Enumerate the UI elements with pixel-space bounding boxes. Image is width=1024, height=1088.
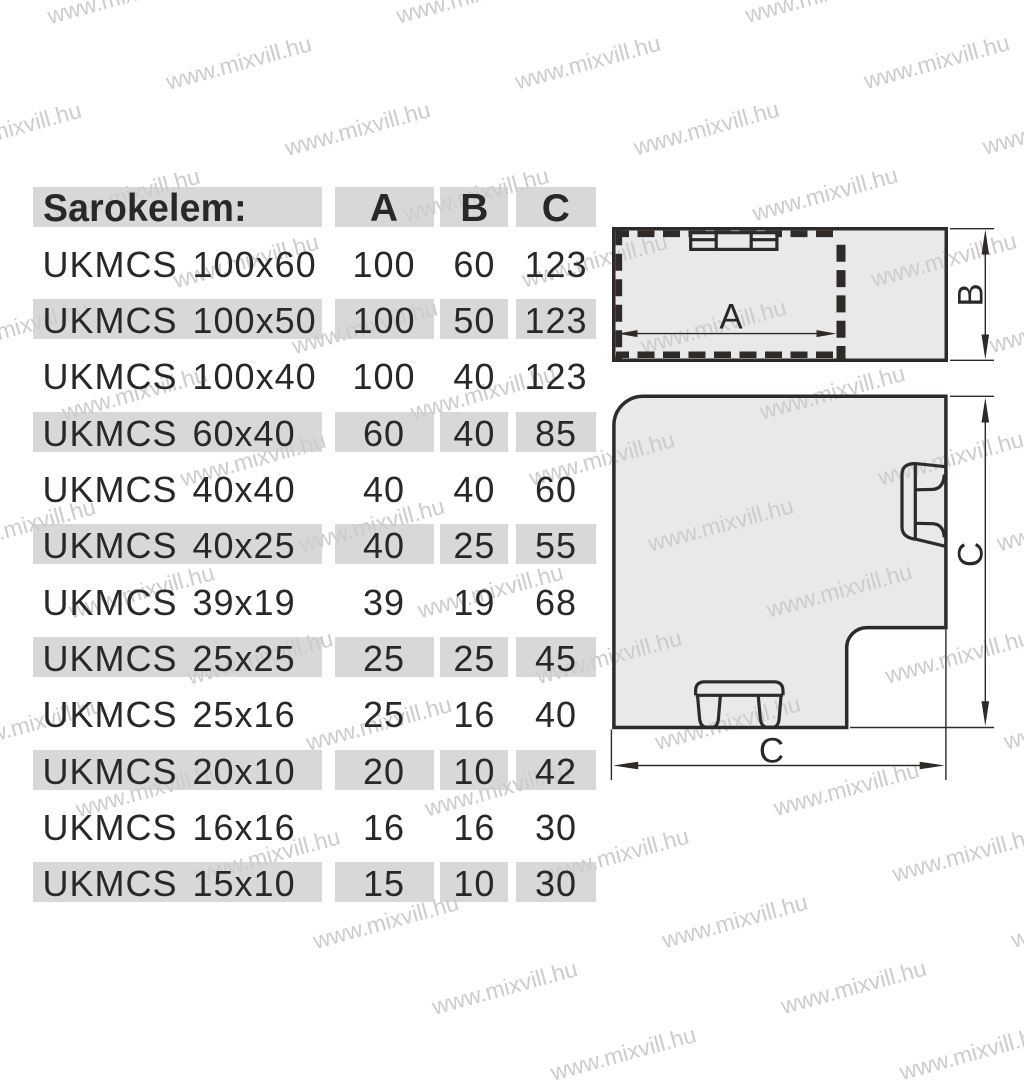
svg-text:www.mixvill.hu: www.mixvill.hu (888, 822, 1024, 887)
svg-text:www.mixvill.hu: www.mixvill.hu (400, 162, 552, 227)
svg-text:www.mixvill.hu: www.mixvill.hu (651, 690, 803, 755)
svg-text:www.mixvill.hu: www.mixvill.hu (644, 492, 796, 557)
svg-text:www.mixvill.hu: www.mixvill.hu (896, 1020, 1024, 1085)
svg-text:www.mixvill.hu: www.mixvill.hu (0, 295, 91, 360)
svg-text:www.mixvill.hu: www.mixvill.hu (763, 558, 915, 623)
svg-text:www.mixvill.hu: www.mixvill.hu (169, 229, 321, 294)
svg-text:www.mixvill.hu: www.mixvill.hu (407, 360, 559, 425)
svg-text:www.mixvill.hu: www.mixvill.hu (51, 163, 203, 228)
svg-text:www.mixvill.hu: www.mixvill.hu (162, 30, 314, 95)
svg-text:www.mixvill.hu: www.mixvill.hu (993, 492, 1024, 557)
svg-text:www.mixvill.hu: www.mixvill.hu (748, 162, 900, 227)
svg-text:www.mixvill.hu: www.mixvill.hu (428, 955, 580, 1020)
svg-text:www.mixvill.hu: www.mixvill.hu (518, 228, 670, 293)
svg-text:www.mixvill.hu: www.mixvill.hu (0, 97, 84, 162)
svg-text:www.mixvill.hu: www.mixvill.hu (511, 30, 663, 95)
svg-text:www.mixvill.hu: www.mixvill.hu (295, 493, 447, 558)
svg-text:www.mixvill.hu: www.mixvill.hu (874, 426, 1024, 491)
svg-text:www.mixvill.hu: www.mixvill.hu (0, 493, 98, 558)
svg-text:www.mixvill.hu: www.mixvill.hu (881, 624, 1024, 689)
svg-text:www.mixvill.hu: www.mixvill.hu (309, 889, 461, 954)
svg-text:www.mixvill.hu: www.mixvill.hu (176, 427, 328, 492)
svg-text:www.mixvill.hu: www.mixvill.hu (525, 426, 677, 491)
svg-text:www.mixvill.hu: www.mixvill.hu (547, 1021, 699, 1086)
svg-text:www.mixvill.hu: www.mixvill.hu (756, 360, 908, 425)
svg-text:www.mixvill.hu: www.mixvill.hu (979, 95, 1024, 160)
svg-text:www.mixvill.hu: www.mixvill.hu (630, 96, 782, 161)
svg-text:www.mixvill.hu: www.mixvill.hu (392, 0, 544, 29)
svg-text:www.mixvill.hu: www.mixvill.hu (770, 756, 922, 821)
svg-text:www.mixvill.hu: www.mixvill.hu (532, 624, 684, 689)
svg-text:www.mixvill.hu: www.mixvill.hu (0, 691, 105, 756)
svg-text:www.mixvill.hu: www.mixvill.hu (65, 559, 217, 624)
svg-text:www.mixvill.hu: www.mixvill.hu (741, 0, 893, 28)
svg-text:www.mixvill.hu: www.mixvill.hu (986, 293, 1024, 358)
svg-text:www.mixvill.hu: www.mixvill.hu (1000, 690, 1024, 755)
svg-text:www.mixvill.hu: www.mixvill.hu (540, 823, 692, 888)
svg-text:www.mixvill.hu: www.mixvill.hu (72, 757, 224, 822)
svg-text:www.mixvill.hu: www.mixvill.hu (191, 823, 343, 888)
svg-text:www.mixvill.hu: www.mixvill.hu (281, 96, 433, 161)
svg-text:www.mixvill.hu: www.mixvill.hu (44, 0, 196, 29)
svg-text:www.mixvill.hu: www.mixvill.hu (867, 227, 1019, 292)
svg-text:www.mixvill.hu: www.mixvill.hu (1007, 888, 1024, 953)
svg-text:www.mixvill.hu: www.mixvill.hu (58, 361, 210, 426)
svg-text:www.mixvill.hu: www.mixvill.hu (860, 29, 1012, 94)
svg-text:www.mixvill.hu: www.mixvill.hu (421, 757, 573, 822)
svg-text:www.mixvill.hu: www.mixvill.hu (302, 691, 454, 756)
svg-text:www.mixvill.hu: www.mixvill.hu (637, 294, 789, 359)
svg-text:www.mixvill.hu: www.mixvill.hu (777, 955, 929, 1020)
svg-text:www.mixvill.hu: www.mixvill.hu (288, 294, 440, 359)
svg-text:www.mixvill.hu: www.mixvill.hu (184, 625, 336, 690)
svg-text:www.mixvill.hu: www.mixvill.hu (658, 889, 810, 954)
svg-text:www.mixvill.hu: www.mixvill.hu (414, 559, 566, 624)
